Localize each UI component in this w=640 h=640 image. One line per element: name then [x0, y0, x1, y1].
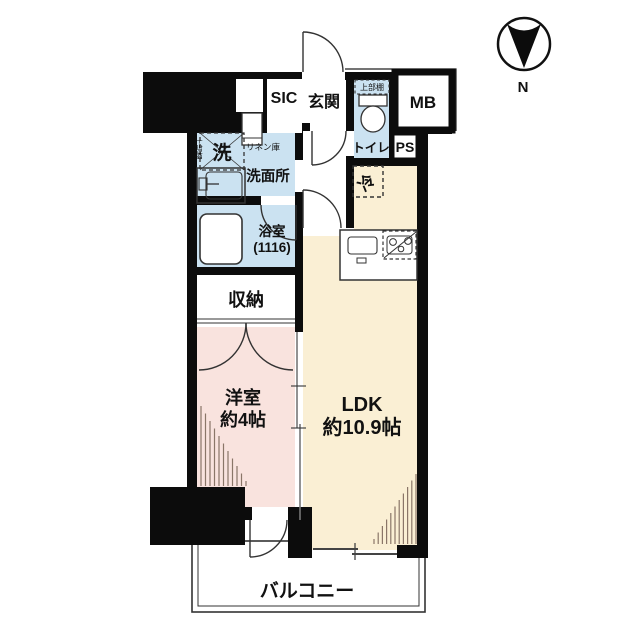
toilet-shelf-label: 上部棚: [360, 82, 384, 92]
bedroom-label: 洋室: [225, 387, 261, 408]
wall-ldk-south-corner: [397, 545, 428, 558]
wall-hall-east-upper: [346, 77, 354, 131]
washroom-label: 洗面所: [246, 167, 290, 185]
wall-entrance-jamb: [302, 123, 310, 131]
wall-bedroom-south: [240, 507, 252, 520]
north-label: N: [518, 79, 529, 96]
ldk-floor: [303, 236, 417, 550]
hall-door: [312, 131, 346, 165]
ldk-size-label: 約10.9帖: [323, 415, 402, 439]
floor-plan-page: バルコニー: [0, 0, 640, 640]
sic-label: SIC: [271, 90, 298, 107]
wall-east: [417, 126, 428, 558]
balcony-label: バルコニー: [260, 580, 355, 602]
washer-shelf-label: 上部棚: [194, 137, 204, 160]
bathroom-label: 浴室: [259, 223, 286, 239]
pipe-space-label: PS: [396, 139, 415, 155]
front-door: [303, 32, 343, 72]
bedroom-size-label: 約4帖: [220, 409, 266, 430]
linen-cabinet: [242, 113, 262, 145]
north-arrow-icon: [507, 24, 541, 68]
floor-plan-drawing: バルコニー: [0, 0, 640, 640]
toilet-label: トイレ: [352, 141, 390, 155]
wall-hall-west-upper: [295, 131, 303, 160]
wall-bath-storage: [187, 267, 303, 275]
meter-box-label: MB: [410, 93, 436, 112]
compass: N: [498, 18, 550, 96]
ldk-door: [303, 190, 341, 228]
storage-label: 収納: [228, 289, 264, 310]
ldk-label: LDK: [341, 394, 383, 416]
bathtub: [200, 214, 242, 264]
wall-west: [187, 133, 197, 487]
kitchen-counter: [340, 230, 417, 280]
wall-block-bottom-left: [150, 487, 245, 545]
bathroom-size-label: (1116): [253, 240, 291, 255]
linen-label: リネン庫: [246, 142, 281, 152]
entrance-label: 玄関: [308, 92, 340, 111]
sic-closet-box: [236, 79, 263, 112]
washer-label: 洗: [212, 141, 231, 164]
